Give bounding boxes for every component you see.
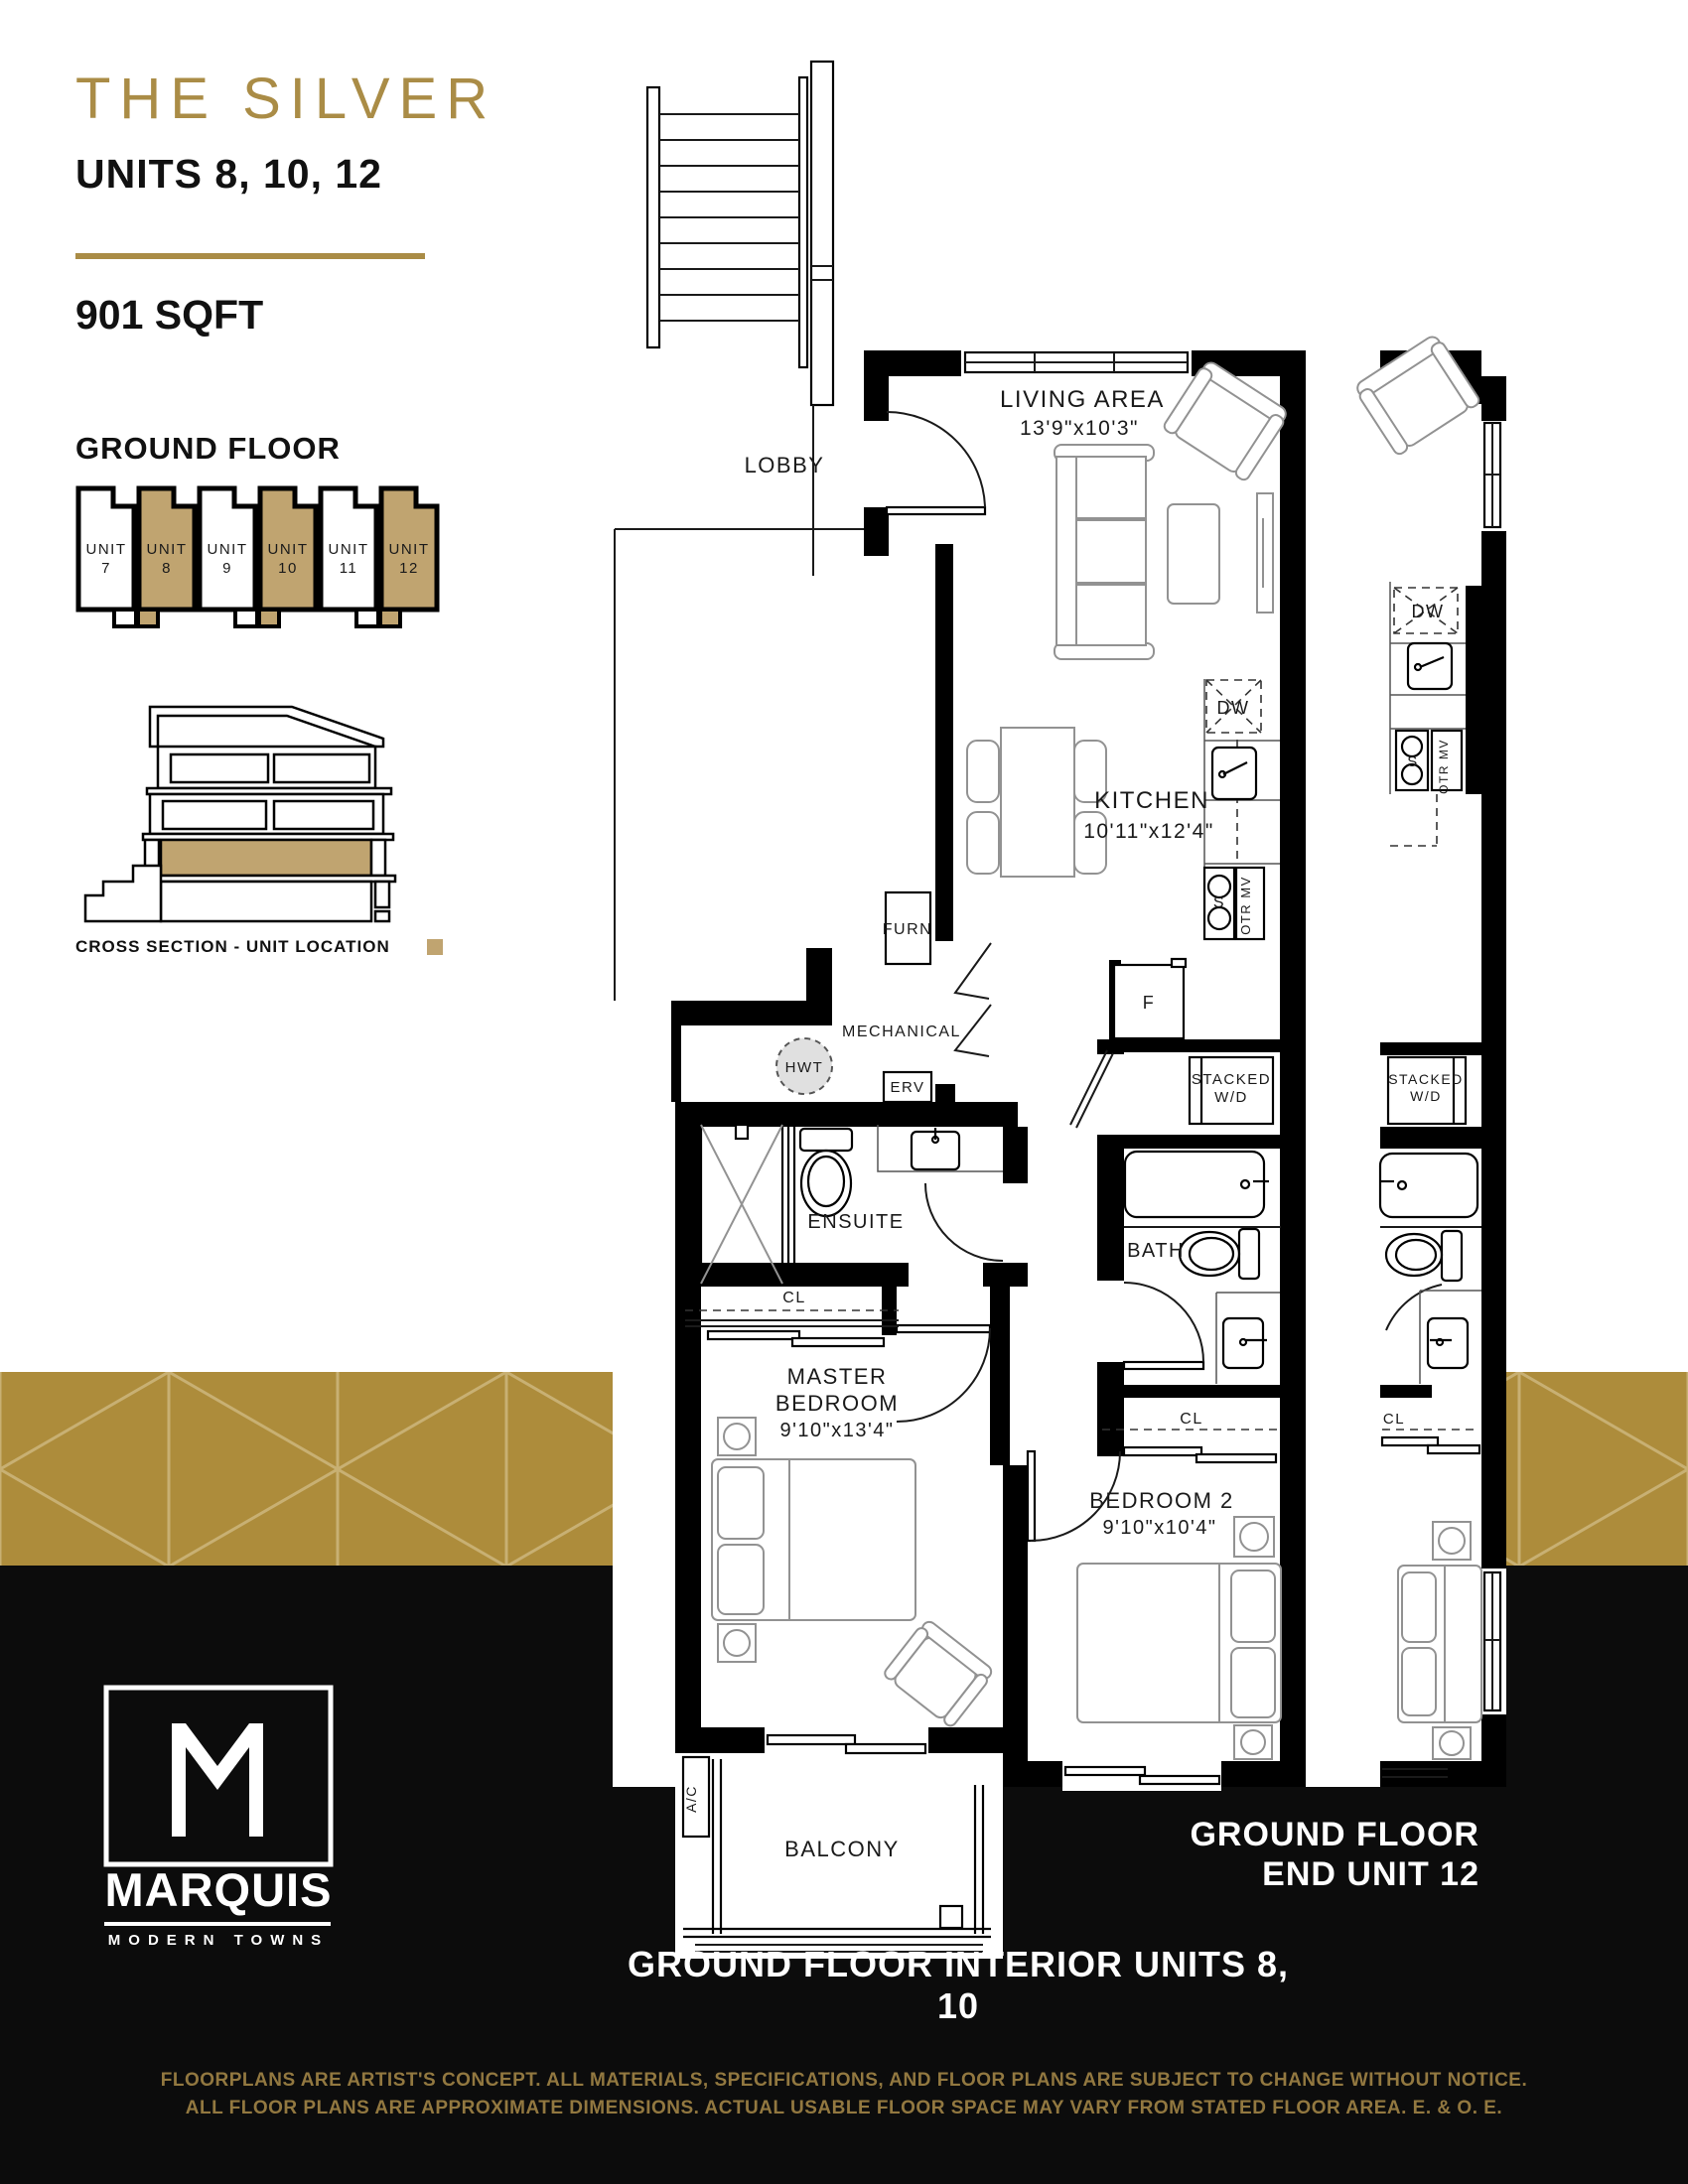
coffee-table [1168,504,1219,604]
label-cl-master: CL [782,1290,805,1306]
strip-label-stacked-2: W/D [1410,1088,1442,1104]
gold-rule [75,253,425,259]
label-lobby: LOBBY [745,453,825,478]
unit-shape-9: UNIT 9 [200,488,255,610]
strip-label-cl: CL [1383,1411,1405,1428]
brand-rule [104,1922,331,1926]
label-master-dims: 9'10"x13'4" [779,1420,894,1441]
caption-end-line2: END UNIT 12 [1190,1854,1479,1894]
svg-text:7: 7 [101,560,111,577]
cs-floor-ground [161,882,371,921]
label-mechanical: MECHANICAL [842,1024,961,1040]
label-otr-mv: OTR MV [1238,876,1253,935]
label-master-2: BEDROOM [775,1391,899,1416]
strip-window-upper [1481,421,1506,531]
label-stacked-1: STACKED [1192,1071,1271,1088]
bedroom2-window [1062,1757,1221,1791]
label-cl-bedroom2: CL [1180,1411,1202,1428]
sofa [1055,445,1154,659]
caption-interior-units: GROUND FLOOR INTERIOR UNITS 8, 10 [611,1944,1306,2027]
svg-text:UNIT: UNIT [389,541,430,558]
svg-text:8: 8 [162,560,172,577]
ground-floor-heading: GROUND FLOOR [75,431,341,467]
cross-section-caption-text: CROSS SECTION - UNIT LOCATION [75,937,390,957]
sqft-value: 901 SQFT [75,292,263,339]
logo-monogram-m [172,1723,263,1837]
cs-highlight-floor [161,840,371,876]
page-subtitle: UNITS 8, 10, 12 [75,151,382,198]
footer-disclaimer: FLOORPLANS ARE ARTIST'S CONCEPT. ALL MAT… [0,2067,1688,2122]
living-window [961,345,1192,381]
svg-text:UNIT: UNIT [208,541,248,558]
strip-label-dw: DW [1412,602,1445,621]
gold-legend-square [427,939,443,955]
page: THE SILVER UNITS 8, 10, 12 901 SQFT GROU… [0,0,1688,2184]
strip-label-stove: S [1407,753,1419,770]
unit-shape-8: UNIT 8 [139,488,195,610]
caption-end-line1: GROUND FLOOR [1190,1815,1479,1854]
svg-text:9: 9 [222,560,232,577]
label-bath: BATH [1127,1240,1185,1262]
unit-shape-7: UNIT 7 [78,488,134,610]
label-ensuite: ENSUITE [807,1211,904,1233]
label-fridge: F [1143,993,1156,1013]
cs-steps [85,866,161,921]
unit-shape-12: UNIT 12 [381,488,437,610]
unit-feet [114,610,400,626]
cross-section-diagram [75,695,443,933]
marquis-logo [84,1683,352,1871]
svg-text:12: 12 [399,560,419,577]
label-kitchen: KITCHEN [1094,787,1209,814]
cross-section-caption: CROSS SECTION - UNIT LOCATION [75,937,443,957]
footer-line2: ALL FLOOR PLANS ARE APPROXIMATE DIMENSIO… [0,2095,1688,2122]
unit-location-diagram: UNIT 7 UNIT 8 UNIT 9 UNIT 10 UNIT 11 UNI… [75,475,443,633]
label-master-1: MASTER [787,1364,888,1389]
label-bedroom2: BEDROOM 2 [1089,1488,1234,1513]
tv-console [1257,493,1273,613]
footer-line1: FLOORPLANS ARE ARTIST'S CONCEPT. ALL MAT… [0,2067,1688,2095]
dining-set [967,728,1106,877]
label-stacked-2: W/D [1214,1089,1248,1106]
svg-text:UNIT: UNIT [147,541,188,558]
strip-label-otr-mv: OTR MV [1437,739,1451,794]
svg-text:UNIT: UNIT [268,541,309,558]
label-living: LIVING AREA [1000,386,1165,413]
label-furn: FURN [883,921,932,938]
svg-text:UNIT: UNIT [329,541,369,558]
label-ac: A/C [683,1785,699,1813]
label-living-dims: 13'9"x10'3" [1020,417,1139,440]
brand-name: MARQUIS [84,1862,352,1917]
label-erv: ERV [890,1079,924,1096]
master-patio-door [765,1723,928,1757]
unit-shape-11: UNIT 11 [321,488,376,610]
label-kitchen-dims: 10'11"x12'4" [1083,820,1214,843]
svg-text:11: 11 [340,560,358,577]
label-bedroom2-dims: 9'10"x10'4" [1102,1517,1216,1539]
label-hwt: HWT [785,1059,824,1076]
svg-text:10: 10 [278,560,298,577]
unit-shape-10: UNIT 10 [260,488,316,610]
label-stove: S [1213,894,1225,911]
strip-label-stacked-1: STACKED [1388,1071,1464,1087]
svg-text:UNIT: UNIT [86,541,127,558]
label-dw: DW [1217,698,1250,718]
floorplan: LOBBY LIVING AREA 13'9"x10'3" KITCHEN 10… [596,50,1529,1966]
strip-window-lower [1481,1569,1506,1714]
label-balcony: BALCONY [784,1837,900,1861]
page-title: THE SILVER [75,66,496,132]
brand-tagline: MODERN TOWNS [84,1932,352,1949]
cs-roof [150,707,383,747]
caption-end-unit: GROUND FLOOR END UNIT 12 [1190,1815,1479,1894]
